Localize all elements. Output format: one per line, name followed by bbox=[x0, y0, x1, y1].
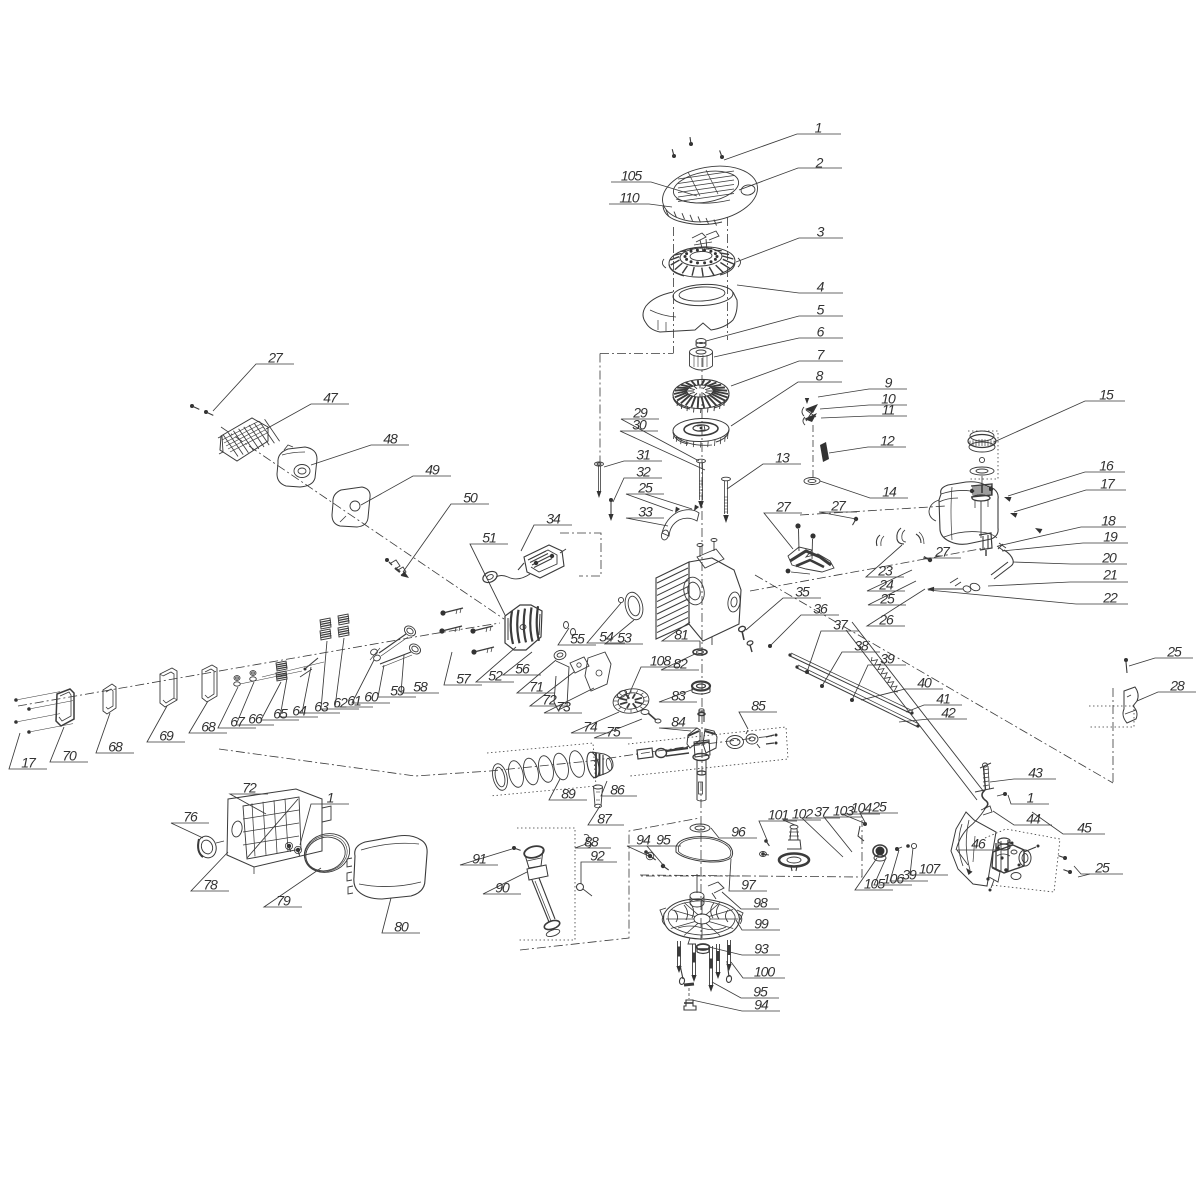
svg-text:70: 70 bbox=[62, 748, 77, 764]
svg-text:28: 28 bbox=[1169, 678, 1185, 694]
svg-text:60: 60 bbox=[364, 689, 379, 705]
svg-text:3: 3 bbox=[817, 224, 825, 240]
svg-text:13: 13 bbox=[775, 450, 790, 466]
svg-text:20: 20 bbox=[1101, 550, 1117, 566]
svg-text:39: 39 bbox=[902, 867, 917, 883]
svg-text:8: 8 bbox=[816, 368, 824, 384]
svg-text:86: 86 bbox=[610, 782, 625, 798]
svg-text:18: 18 bbox=[1101, 513, 1116, 529]
svg-text:57: 57 bbox=[456, 671, 472, 687]
svg-text:106: 106 bbox=[883, 871, 905, 887]
svg-text:67: 67 bbox=[230, 714, 246, 730]
svg-text:46: 46 bbox=[971, 836, 986, 852]
svg-text:37: 37 bbox=[833, 617, 849, 633]
svg-text:75: 75 bbox=[606, 724, 621, 740]
svg-text:53: 53 bbox=[617, 630, 632, 646]
svg-text:43: 43 bbox=[1028, 765, 1043, 781]
svg-text:35: 35 bbox=[795, 584, 810, 600]
svg-text:27: 27 bbox=[830, 498, 847, 514]
svg-text:54: 54 bbox=[599, 629, 614, 645]
svg-text:81: 81 bbox=[674, 627, 688, 643]
svg-text:14: 14 bbox=[882, 484, 897, 500]
svg-text:19: 19 bbox=[1103, 529, 1118, 545]
svg-text:30: 30 bbox=[632, 417, 647, 433]
svg-text:73: 73 bbox=[556, 699, 571, 715]
svg-text:61: 61 bbox=[347, 693, 361, 709]
svg-text:51: 51 bbox=[482, 530, 496, 546]
svg-text:6: 6 bbox=[817, 324, 825, 340]
svg-text:94: 94 bbox=[636, 832, 651, 848]
svg-text:69: 69 bbox=[159, 728, 174, 744]
svg-text:27: 27 bbox=[775, 499, 792, 515]
svg-text:25: 25 bbox=[1094, 860, 1110, 876]
svg-text:42: 42 bbox=[941, 705, 956, 721]
svg-text:47: 47 bbox=[323, 390, 339, 406]
svg-text:78: 78 bbox=[203, 877, 218, 893]
svg-text:16: 16 bbox=[1099, 458, 1114, 474]
svg-text:66: 66 bbox=[248, 711, 263, 727]
svg-text:52: 52 bbox=[488, 668, 503, 684]
svg-text:11: 11 bbox=[882, 402, 895, 418]
svg-text:21: 21 bbox=[1102, 567, 1117, 583]
svg-text:83: 83 bbox=[671, 688, 686, 704]
svg-text:5: 5 bbox=[817, 302, 825, 318]
svg-text:2: 2 bbox=[815, 155, 824, 171]
svg-text:1: 1 bbox=[1027, 790, 1034, 806]
svg-text:108: 108 bbox=[650, 653, 672, 669]
svg-text:25: 25 bbox=[871, 799, 887, 815]
svg-text:68: 68 bbox=[108, 739, 123, 755]
svg-text:89: 89 bbox=[561, 786, 576, 802]
svg-text:72: 72 bbox=[242, 780, 257, 796]
svg-text:26: 26 bbox=[878, 612, 894, 628]
svg-text:45: 45 bbox=[1077, 820, 1092, 836]
svg-text:12: 12 bbox=[880, 433, 895, 449]
svg-text:55: 55 bbox=[570, 631, 585, 647]
svg-text:25: 25 bbox=[879, 591, 895, 607]
svg-text:25: 25 bbox=[1166, 644, 1182, 660]
svg-text:93: 93 bbox=[754, 941, 769, 957]
svg-text:15: 15 bbox=[1099, 387, 1114, 403]
svg-text:99: 99 bbox=[754, 916, 769, 932]
svg-text:9: 9 bbox=[885, 375, 893, 391]
svg-text:1: 1 bbox=[815, 120, 822, 136]
svg-text:59: 59 bbox=[390, 683, 405, 699]
svg-text:48: 48 bbox=[383, 431, 398, 447]
svg-text:34: 34 bbox=[546, 511, 561, 527]
svg-text:105: 105 bbox=[621, 168, 643, 184]
svg-text:22: 22 bbox=[1102, 590, 1118, 606]
svg-text:95: 95 bbox=[656, 832, 671, 848]
svg-text:76: 76 bbox=[183, 809, 198, 825]
svg-text:31: 31 bbox=[636, 447, 650, 463]
svg-text:25: 25 bbox=[637, 480, 653, 496]
svg-text:36: 36 bbox=[813, 601, 828, 617]
svg-text:64: 64 bbox=[292, 703, 307, 719]
svg-text:100: 100 bbox=[754, 964, 776, 980]
svg-text:40: 40 bbox=[917, 675, 932, 691]
svg-text:71: 71 bbox=[529, 679, 543, 695]
svg-text:38: 38 bbox=[854, 638, 869, 654]
svg-text:90: 90 bbox=[495, 880, 510, 896]
svg-text:80: 80 bbox=[394, 919, 409, 935]
svg-text:17: 17 bbox=[21, 755, 37, 771]
svg-text:33: 33 bbox=[638, 504, 653, 520]
svg-text:87: 87 bbox=[597, 811, 613, 827]
svg-text:68: 68 bbox=[201, 719, 216, 735]
svg-text:27: 27 bbox=[934, 544, 951, 560]
svg-text:84: 84 bbox=[671, 714, 686, 730]
svg-text:79: 79 bbox=[276, 893, 291, 909]
svg-text:17: 17 bbox=[1100, 476, 1116, 492]
svg-text:27: 27 bbox=[267, 350, 284, 366]
svg-text:39: 39 bbox=[880, 651, 895, 667]
svg-text:92: 92 bbox=[590, 848, 605, 864]
svg-text:98: 98 bbox=[753, 895, 768, 911]
svg-text:32: 32 bbox=[636, 464, 651, 480]
svg-text:72: 72 bbox=[542, 692, 557, 708]
svg-text:74: 74 bbox=[583, 719, 598, 735]
svg-text:94: 94 bbox=[754, 997, 769, 1013]
svg-text:1: 1 bbox=[327, 790, 334, 806]
svg-text:107: 107 bbox=[919, 861, 942, 877]
svg-text:82: 82 bbox=[673, 656, 688, 672]
svg-text:110: 110 bbox=[619, 190, 640, 206]
svg-text:58: 58 bbox=[413, 679, 428, 695]
svg-text:56: 56 bbox=[515, 661, 530, 677]
svg-text:91: 91 bbox=[472, 851, 486, 867]
svg-text:49: 49 bbox=[425, 462, 440, 478]
svg-text:85: 85 bbox=[751, 698, 766, 714]
svg-text:96: 96 bbox=[731, 824, 746, 840]
svg-text:50: 50 bbox=[463, 490, 478, 506]
svg-text:97: 97 bbox=[741, 877, 757, 893]
svg-text:4: 4 bbox=[817, 279, 825, 295]
